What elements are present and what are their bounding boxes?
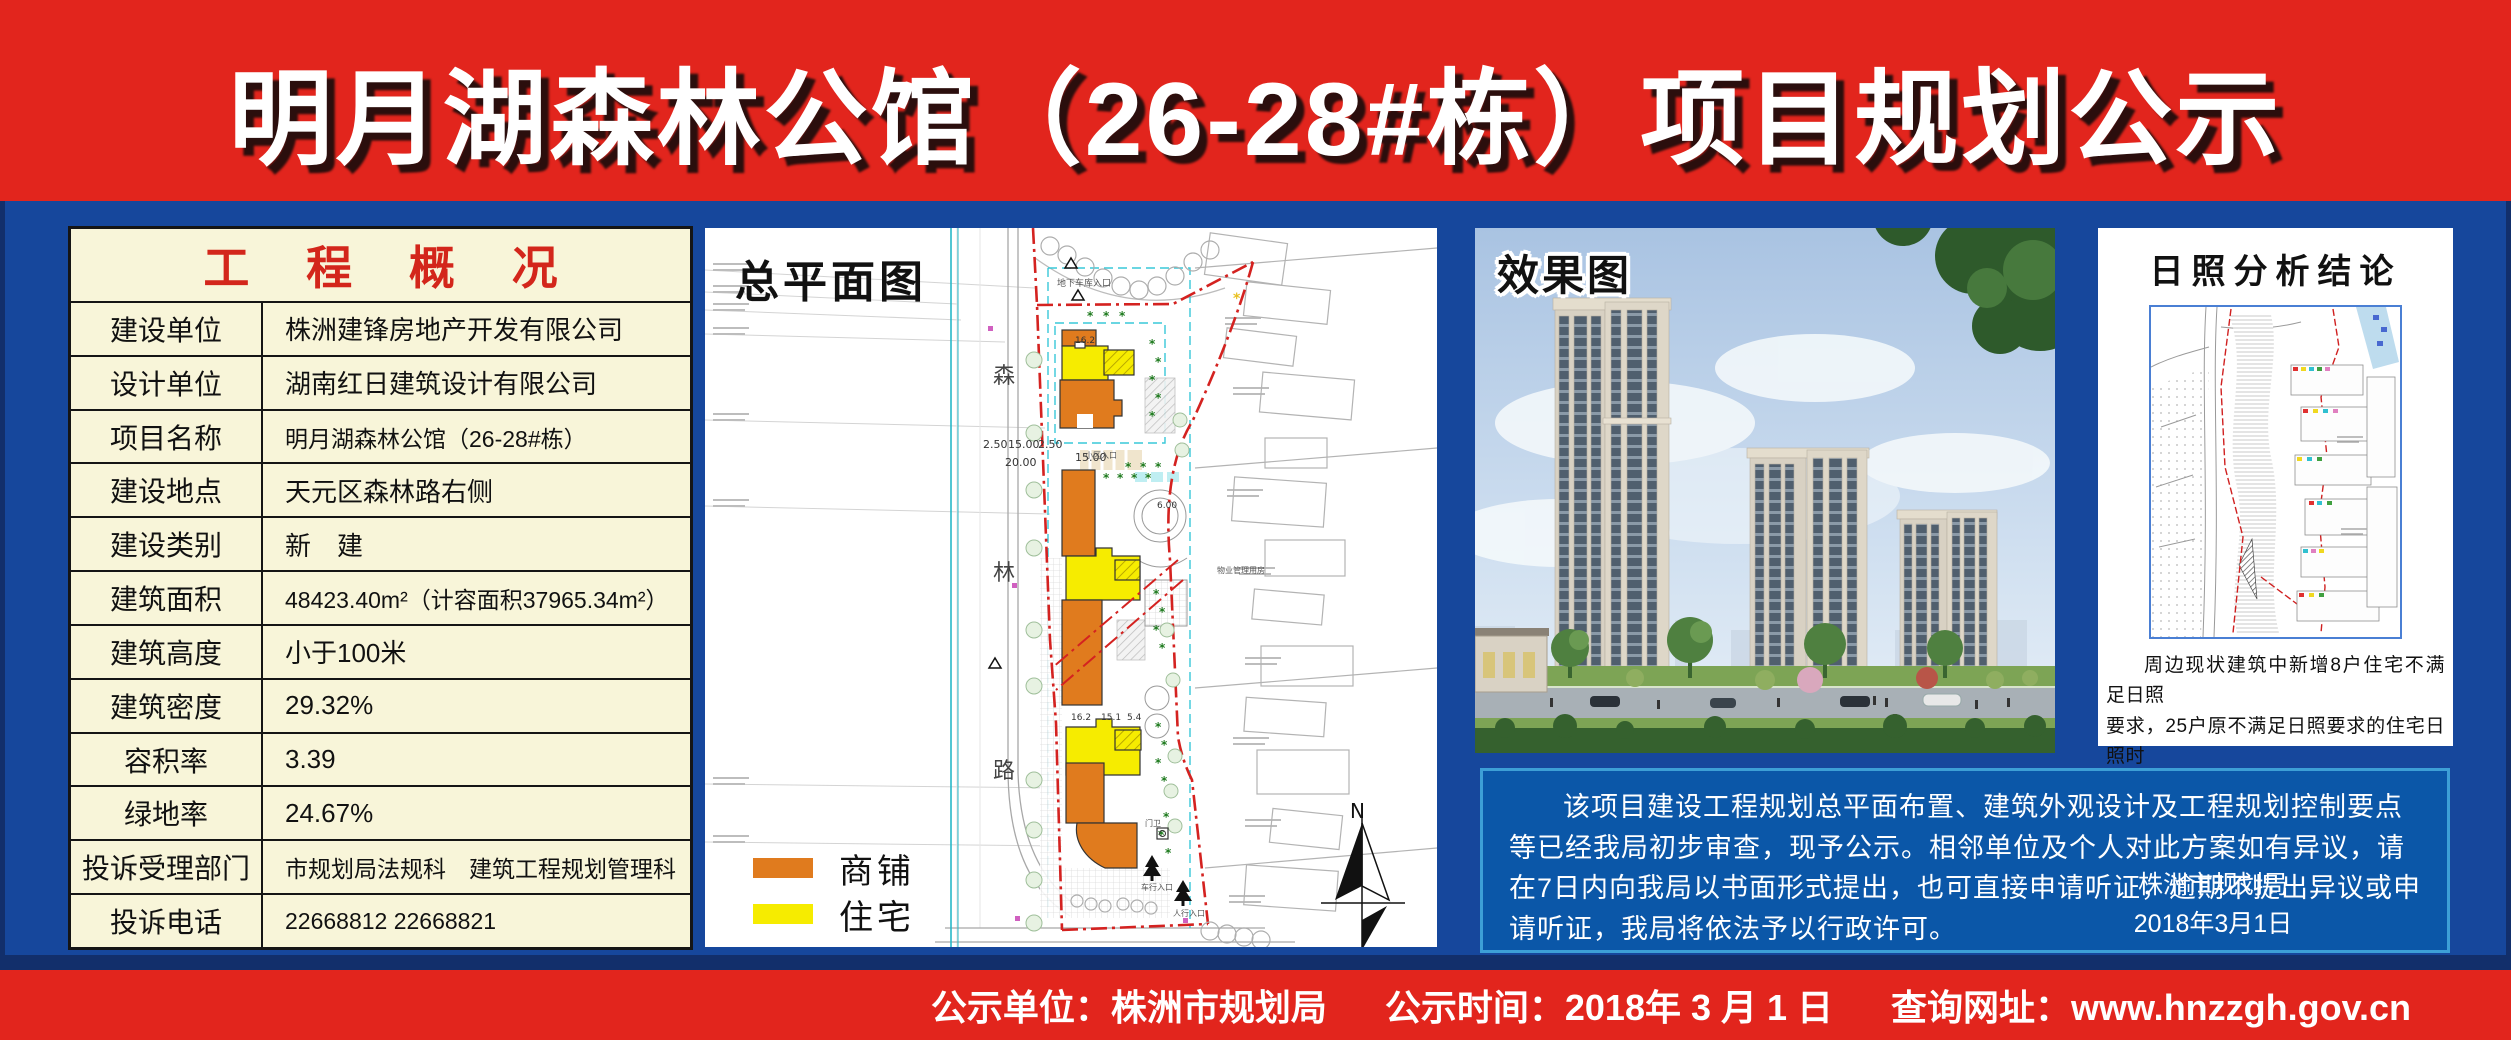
svg-text:*: * — [1149, 337, 1156, 351]
table-header: 工 程 概 况 — [71, 229, 690, 301]
svg-text:*: * — [1149, 373, 1156, 387]
row-value: 新 建 — [263, 518, 690, 570]
svg-text:*: * — [1155, 460, 1162, 474]
table-row: 项目名称明月湖森林公馆（26-28#栋） — [71, 409, 690, 463]
rendering-image — [1475, 228, 2055, 753]
svg-text:人行入口: 人行入口 — [1173, 908, 1205, 918]
row-value: 3.39 — [263, 734, 690, 786]
svg-text:16.2: 16.2 — [1071, 713, 1091, 723]
table-row: 设计单位湖南红日建筑设计有限公司 — [71, 355, 690, 409]
sunshine-map — [2149, 305, 2402, 639]
row-label: 投诉受理部门 — [71, 841, 263, 893]
announcement-signature: 株洲市规划局 2018年3月1日 — [2023, 866, 2403, 944]
svg-text:物业管理用房: 物业管理用房 — [1217, 565, 1265, 575]
row-label: 建筑面积 — [71, 572, 263, 624]
footer-strip: 公示单位：株洲市规划局公示时间：2018年 3 月 1 日查询网址：www.hn… — [0, 970, 2511, 1040]
svg-text:*: * — [1103, 309, 1110, 323]
svg-text:*: * — [1233, 291, 1241, 307]
svg-text:*: * — [1155, 391, 1162, 405]
svg-text:2.50: 2.50 — [983, 438, 1008, 451]
svg-text:*: * — [1149, 409, 1156, 423]
legend-item: 住宅 — [753, 896, 915, 932]
north-arrow-icon: N — [1321, 799, 1405, 947]
page-title: 明月湖森林公馆（26-28#栋）项目规划公示 — [0, 34, 2511, 185]
svg-text:*: * — [1117, 471, 1124, 485]
svg-text:*: * — [1131, 471, 1138, 485]
row-value: 22668812 22668821 — [263, 895, 690, 947]
announcement-signer: 株洲市规划局 — [2023, 866, 2403, 905]
svg-text:门卫: 门卫 — [1145, 818, 1161, 828]
row-value: 小于100米 — [263, 626, 690, 678]
legend-label: 商铺 — [839, 844, 915, 893]
dotted-terrain — [2151, 367, 2209, 637]
table-row: 建筑密度29.32% — [71, 678, 690, 732]
row-label: 建筑密度 — [71, 680, 263, 732]
announcement-box: 该项目建设工程规划总平面布置、建筑外观设计及工程规划控制要点等已经我局初步审查，… — [1480, 768, 2450, 953]
table-row: 投诉电话22668812 22668821 — [71, 893, 690, 947]
svg-text:*: * — [1119, 309, 1126, 323]
project-overview-table: 工 程 概 况 建设单位株洲建锋房地产开发有限公司设计单位湖南红日建筑设计有限公… — [68, 226, 693, 950]
buildings — [1060, 330, 1141, 868]
row-label: 设计单位 — [71, 357, 263, 409]
row-value: 市规划局法规科 建筑工程规划管理科 — [263, 841, 690, 893]
footer-divider — [0, 955, 2511, 970]
site-plan-legend: 商铺住宅 — [753, 850, 915, 942]
svg-text:*: * — [1159, 641, 1166, 655]
site-plan-panel: *** ***** *** **** **** **** *** * — [705, 228, 1437, 947]
svg-text:6.00: 6.00 — [1157, 501, 1177, 511]
site-plan-drawing: *** ***** *** **** **** **** *** * — [705, 228, 1437, 947]
site-plan-title: 总平面图 — [735, 246, 927, 310]
footer-text: 公示单位：株洲市规划局公示时间：2018年 3 月 1 日查询网址：www.hn… — [931, 970, 2411, 1040]
row-value: 48423.40m²（计容面积37965.34m²） — [263, 572, 690, 624]
sunshine-panel: 日照分析结论 — [2098, 228, 2453, 746]
svg-text:*: * — [1161, 738, 1168, 752]
svg-text:N: N — [1350, 799, 1365, 823]
right-edge-trim — [2506, 201, 2511, 970]
row-label: 建设类别 — [71, 518, 263, 570]
svg-text:*: * — [1159, 605, 1166, 619]
row-label: 容积率 — [71, 734, 263, 786]
footer-item: 公示单位：株洲市规划局 — [931, 979, 1327, 1031]
legend-swatch — [753, 858, 813, 878]
table-row: 建筑高度小于100米 — [71, 624, 690, 678]
svg-text:*: * — [1163, 810, 1170, 824]
row-label: 建筑高度 — [71, 626, 263, 678]
row-value: 24.67% — [263, 787, 690, 839]
row-label: 建设地点 — [71, 464, 263, 516]
table-row: 绿地率24.67% — [71, 785, 690, 839]
legend-label: 住宅 — [839, 890, 915, 939]
rendering-title: 效果图 — [1497, 242, 1632, 303]
row-label: 投诉电话 — [71, 895, 263, 947]
svg-text:2.50: 2.50 — [1038, 438, 1063, 451]
svg-text:森: 森 — [993, 364, 1015, 389]
rendering-panel: 效果图 — [1475, 228, 2055, 753]
svg-text:5.4: 5.4 — [1127, 713, 1142, 723]
table-row: 容积率3.39 — [71, 732, 690, 786]
table-row: 建筑面积48423.40m²（计容面积37965.34m²） — [71, 570, 690, 624]
table-row: 建设单位株洲建锋房地产开发有限公司 — [71, 301, 690, 355]
svg-text:车行入口: 车行入口 — [1141, 882, 1173, 892]
legend-swatch — [753, 904, 813, 924]
table-row: 建设类别新 建 — [71, 516, 690, 570]
svg-text:小区入口: 小区入口 — [1085, 451, 1117, 460]
svg-text:地下车库入口: 地下车库入口 — [1057, 277, 1111, 289]
footer-item: 查询网址：www.hnzzgh.gov.cn — [1891, 979, 2411, 1031]
svg-text:*: * — [1155, 355, 1162, 369]
svg-text:林: 林 — [993, 561, 1015, 586]
svg-text:*: * — [1161, 774, 1168, 788]
row-value: 明月湖森林公馆（26-28#栋） — [263, 411, 690, 463]
announcement-date: 2018年3月1日 — [2023, 905, 2403, 944]
svg-text:*: * — [1158, 828, 1165, 842]
table-row: 投诉受理部门市规划局法规科 建筑工程规划管理科 — [71, 839, 690, 893]
left-edge-trim — [0, 201, 5, 970]
row-label: 项目名称 — [71, 411, 263, 463]
svg-text:*: * — [1103, 471, 1110, 485]
svg-text:*: * — [1087, 309, 1094, 323]
svg-text:*: * — [1165, 846, 1172, 860]
svg-text:16.2: 16.2 — [1075, 336, 1095, 346]
svg-text:*: * — [1153, 623, 1160, 637]
svg-text:路: 路 — [993, 759, 1015, 784]
svg-text:*: * — [1155, 720, 1162, 734]
row-value: 湖南红日建筑设计有限公司 — [263, 357, 690, 409]
table-body: 建设单位株洲建锋房地产开发有限公司设计单位湖南红日建筑设计有限公司项目名称明月湖… — [71, 301, 690, 947]
banner: 明月湖森林公馆（26-28#栋）项目规划公示 — [0, 0, 2511, 201]
row-value: 株洲建锋房地产开发有限公司 — [263, 303, 690, 355]
tower-2 — [1747, 448, 1869, 698]
legend-item: 商铺 — [753, 850, 915, 886]
svg-text:15.00: 15.00 — [1008, 438, 1040, 451]
row-label: 建设单位 — [71, 303, 263, 355]
svg-text:*: * — [1153, 587, 1160, 601]
sunshine-title: 日照分析结论 — [2098, 244, 2453, 293]
row-label: 绿地率 — [71, 787, 263, 839]
svg-text:*: * — [1145, 471, 1152, 485]
footer-item: 公示时间：2018年 3 月 1 日 — [1385, 979, 1833, 1031]
table-row: 建设地点天元区森林路右侧 — [71, 462, 690, 516]
svg-text:*: * — [1155, 756, 1162, 770]
row-value: 29.32% — [263, 680, 690, 732]
row-value: 天元区森林路右侧 — [263, 464, 690, 516]
svg-text:20.00: 20.00 — [1005, 456, 1037, 469]
svg-text:15.1: 15.1 — [1101, 713, 1121, 723]
